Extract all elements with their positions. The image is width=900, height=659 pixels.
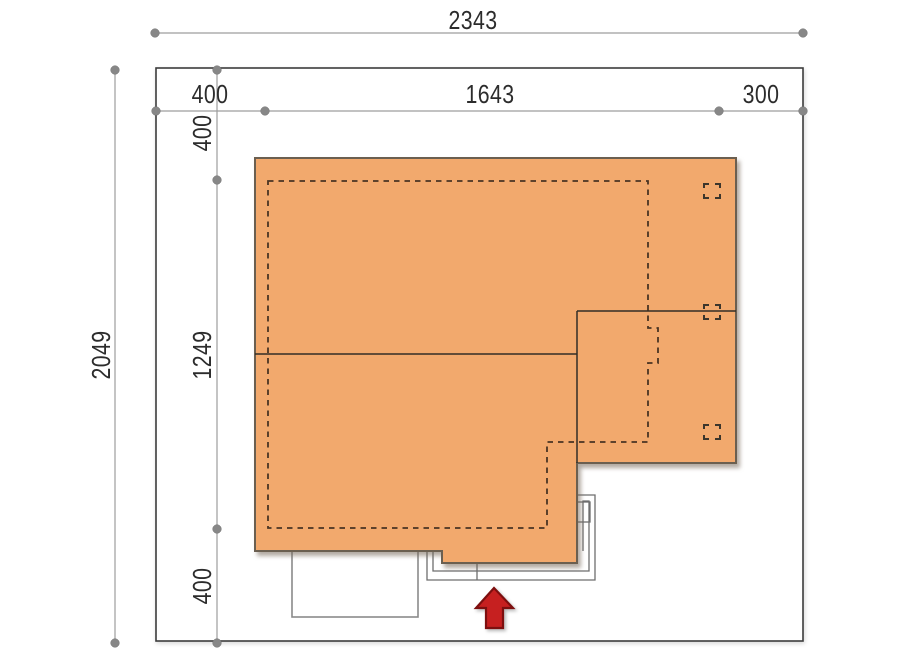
site-plan-canvas: 2343 400 1643 300 2049 400 1249 400 (0, 0, 900, 659)
dimension-dot (715, 107, 724, 116)
dim-label-total-width: 2343 (448, 6, 497, 36)
dimension-dot (213, 639, 222, 648)
dim-label-setback-right: 300 (743, 80, 780, 110)
dimension-dot (152, 107, 161, 116)
dimension-dot (213, 66, 222, 75)
dimension-dot (213, 525, 222, 534)
dimension-dot (111, 639, 120, 648)
dim-label-setback-bottom: 400 (188, 568, 218, 605)
terrace (292, 551, 418, 617)
site-plan: 2343 400 1643 300 2049 400 1249 400 (0, 0, 900, 659)
dimension-dot (799, 107, 808, 116)
dim-label-total-height: 2049 (87, 330, 117, 379)
dimension-dot (261, 107, 270, 116)
dimension-dot (213, 176, 222, 185)
dim-label-setback-top: 400 (188, 115, 218, 152)
dim-label-building-width: 1643 (465, 80, 514, 110)
dimension-dot (151, 29, 160, 38)
dimension-dot (111, 66, 120, 75)
dimension-dot (799, 29, 808, 38)
dim-label-building-depth: 1249 (188, 330, 218, 379)
dim-label-setback-left: 400 (192, 80, 229, 110)
